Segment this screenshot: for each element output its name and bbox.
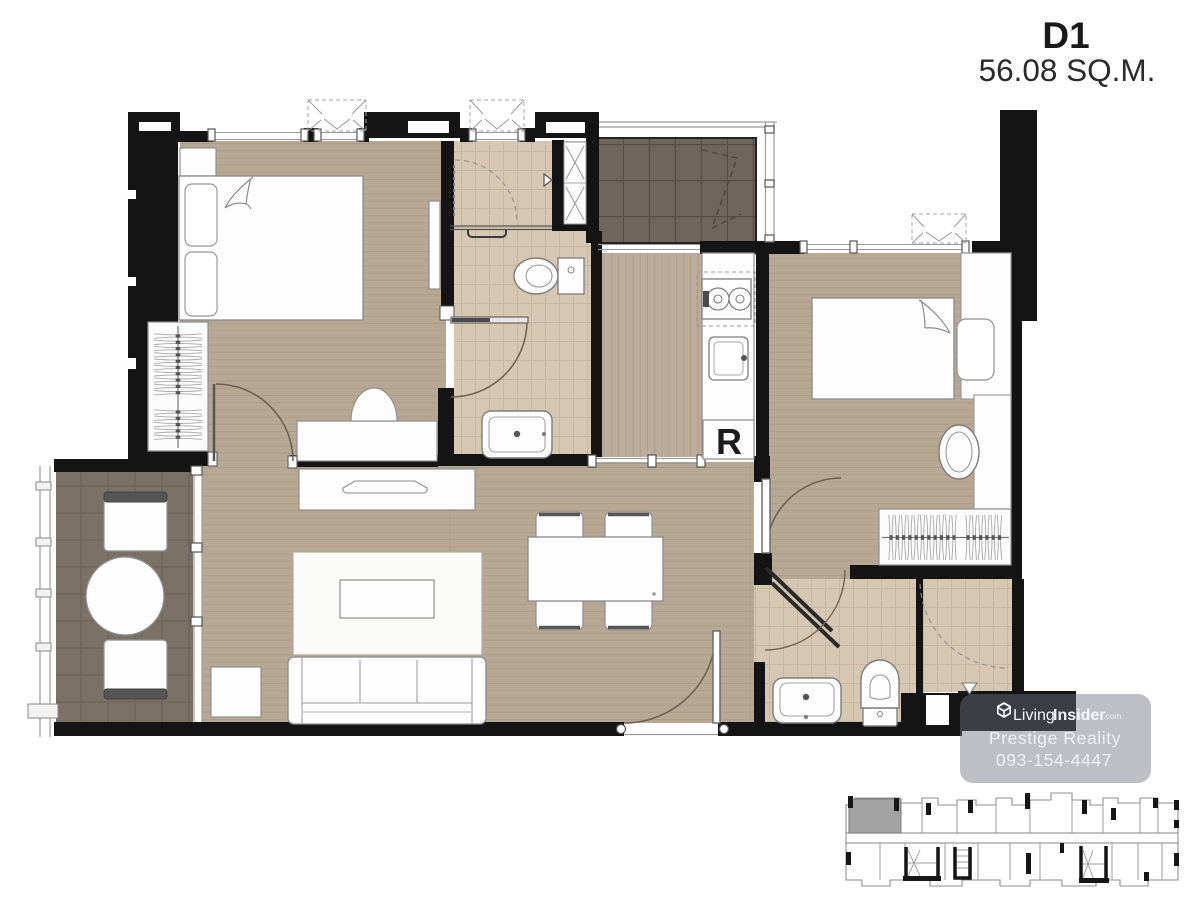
svg-text:093-154-4447: 093-154-4447 — [996, 750, 1112, 770]
svg-text:.com: .com — [1103, 711, 1121, 721]
svg-text:D1: D1 — [1042, 15, 1089, 56]
svg-text:56.08 SQ.M.: 56.08 SQ.M. — [979, 52, 1156, 88]
svg-text:Insider: Insider — [1053, 707, 1105, 724]
svg-text:R: R — [716, 421, 742, 462]
svg-text:Prestige Reality: Prestige Reality — [989, 728, 1121, 748]
svg-text:Living: Living — [1013, 707, 1055, 724]
